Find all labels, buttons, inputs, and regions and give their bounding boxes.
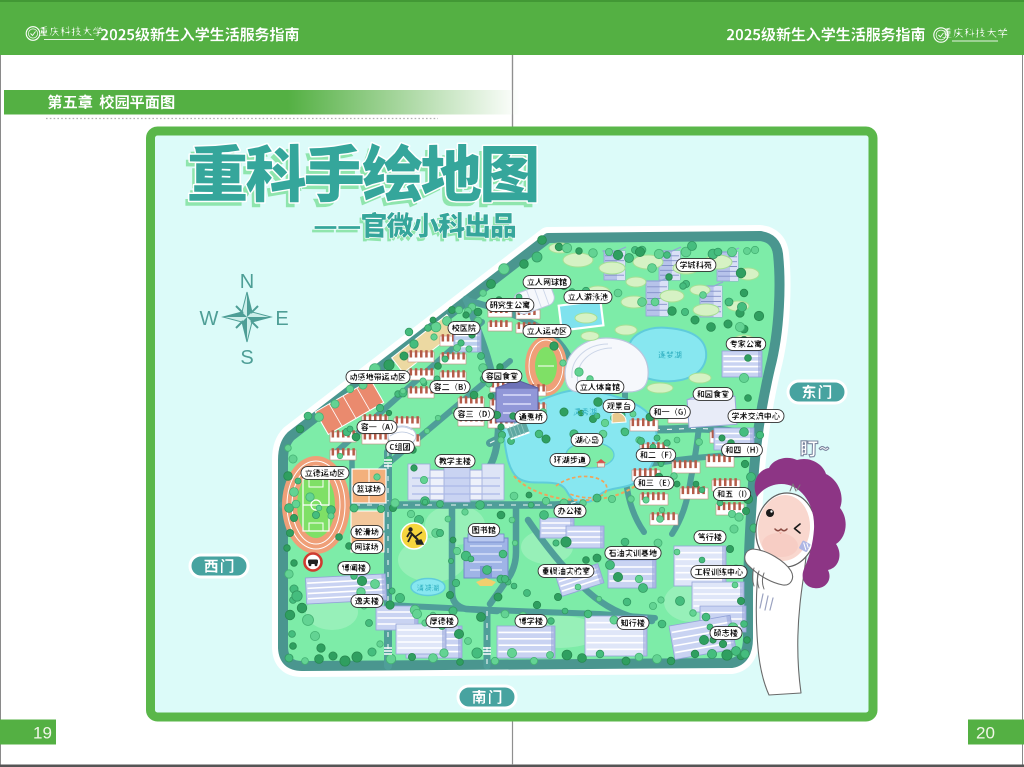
svg-text:N: N [240,271,254,293]
svg-text:19: 19 [33,724,52,743]
svg-text:20: 20 [976,724,995,743]
svg-text:S: S [240,347,253,369]
svg-text:E: E [275,308,288,330]
svg-text:W: W [200,308,219,330]
